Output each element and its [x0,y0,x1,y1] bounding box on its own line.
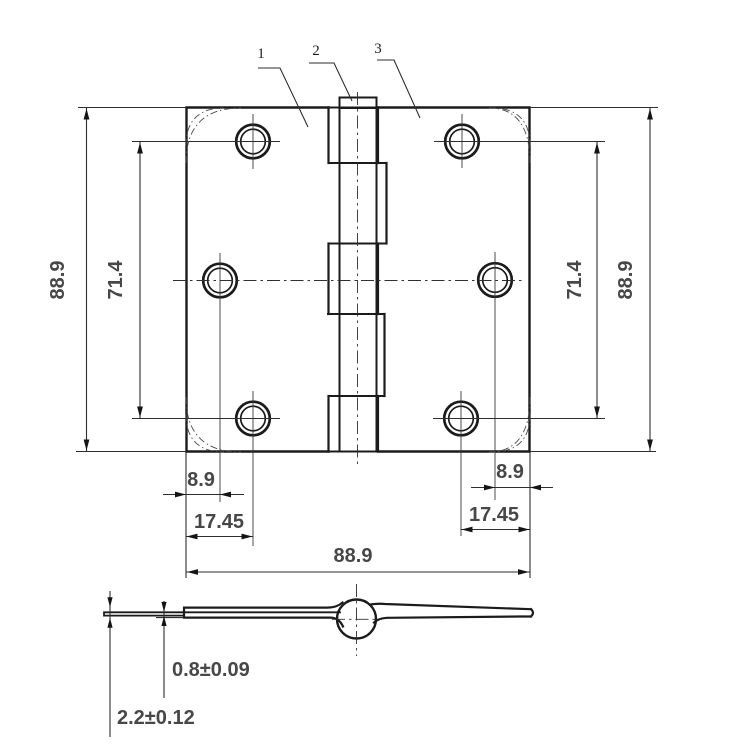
callout-2-label: 2 [312,43,320,59]
dim-label-left-overall: 88.9 [47,261,69,300]
side-view-right-leaf [370,604,533,623]
dim-label-right-8-9: 8.9 [496,461,524,483]
dim-label-right-holes: 71.4 [564,260,586,300]
dim-label-right-17-45: 17.45 [469,504,519,526]
right-knuckle-edges [378,108,387,452]
dim-label-left-holes: 71.4 [105,260,127,300]
top-view [173,92,530,546]
callout-1-label: 1 [257,46,265,62]
side-view-left-leaf [184,603,343,627]
dimension-arrowheads [84,109,653,575]
extension-lines [76,108,658,579]
dim-label-right-overall: 88.9 [615,261,637,300]
callout-3-label: 3 [374,41,382,57]
dim-label-left-8-9: 8.9 [187,469,215,491]
dim-label-left-17-45: 17.45 [194,511,244,533]
dimensions: 88.9 71.4 71.4 88.9 8.9 17.45 88.9 8.9 1… [47,108,658,579]
pin-edges [340,108,377,452]
hinge-drawing-canvas: 1 2 3 88.9 71.4 71.4 [0,0,750,750]
dim-label-bottom-overall: 88.9 [334,545,373,567]
side-view-thin-tail [104,612,340,615]
dim-label-single-thickness: 0.8±0.09 [172,659,250,681]
dim-label-total-thickness: 2.2±0.12 [117,707,195,729]
drawing-svg: 1 2 3 88.9 71.4 71.4 [0,0,750,750]
side-view [104,584,533,656]
pin-cap [340,98,377,109]
